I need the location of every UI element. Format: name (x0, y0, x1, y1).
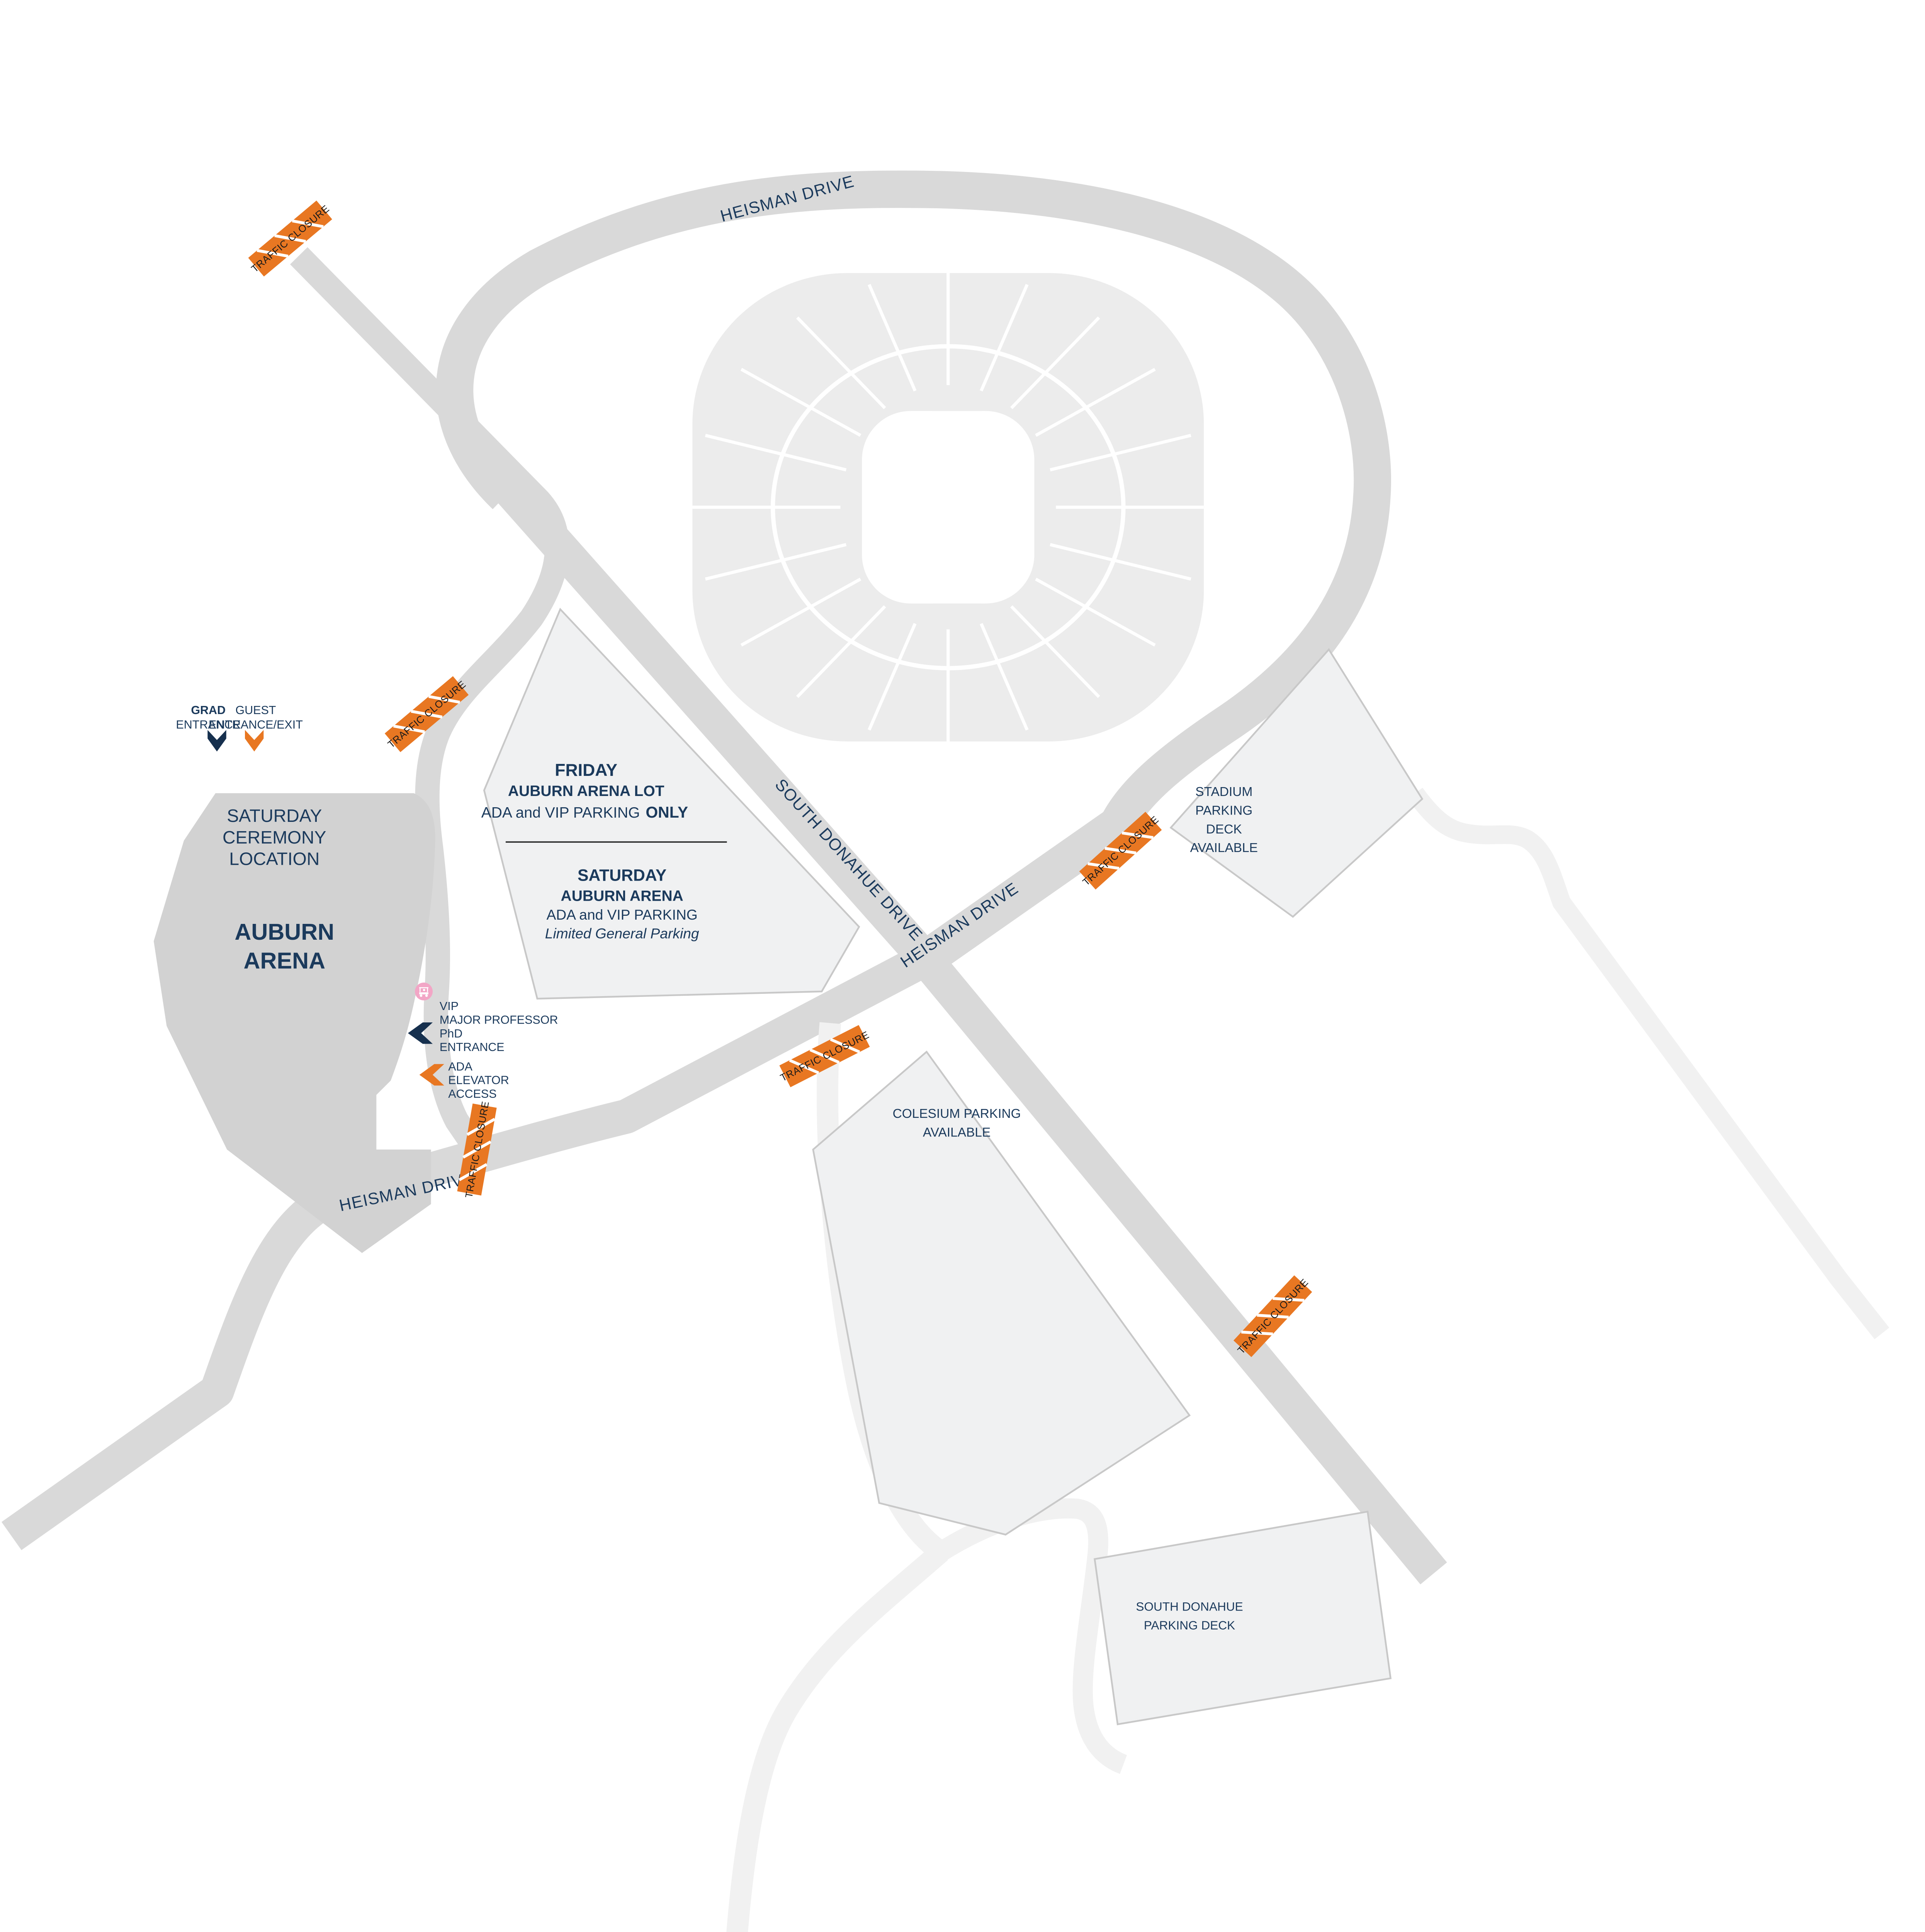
guest-entrance-label-line2: ENTRANCE/EXIT (209, 718, 303, 731)
friday-detail: ADA and VIP PARKINGONLY (481, 803, 688, 821)
vip-label-line2: MAJOR PROFESSOR (440, 1014, 558, 1027)
stadium-deck-exit-road (1415, 793, 1882, 1333)
deck-loop-road (941, 1509, 1123, 1765)
saturday-detail: ADA and VIP PARKING (547, 906, 698, 923)
grad-entrance-arrow-icon (207, 730, 226, 752)
stadium-parking-deck (1171, 650, 1422, 917)
stadium-deck-line1: STADIUM (1195, 785, 1252, 799)
golf-cart-badge (415, 983, 433, 1000)
saturday-subtitle: AUBURN ARENA (561, 888, 683, 905)
guest-entrance-arrow-icon (245, 730, 263, 752)
ceremony-line1: SATURDAY (227, 806, 322, 826)
south-access-road (724, 1552, 941, 1932)
vip-label-line3: PhD (440, 1027, 462, 1040)
golf-cart-badge-circle (415, 983, 433, 1000)
colesium-line2: AVAILABLE (923, 1125, 991, 1139)
campus-map: HEISMAN DRIVE SOUTH DONAHUE DRIVE HEISMA… (0, 0, 1925, 1932)
stadium-deck-line3: DECK (1206, 822, 1242, 837)
saturday-note: Limited General Parking (545, 925, 699, 941)
stadium-deck-line2: PARKING (1195, 804, 1252, 818)
sd-deck-line1: SOUTH DONAHUE (1136, 1600, 1243, 1614)
parking-areas (484, 609, 1422, 1725)
sd-deck-line2: PARKING DECK (1144, 1618, 1235, 1632)
stadium (692, 273, 1204, 742)
ada-label-line2: ELEVATOR (448, 1074, 509, 1087)
saturday-title: SATURDAY (578, 866, 666, 885)
vip-label-line4: ENTRANCE (440, 1041, 505, 1054)
vip-label-line1: VIP (440, 1000, 459, 1013)
ceremony-location-label: SATURDAY CEREMONY LOCATION (223, 806, 326, 869)
guest-entrance-label-line1: GUEST (235, 704, 276, 717)
stadium-deck-line4: AVAILABLE (1190, 841, 1258, 855)
colesium-line1: COLESIUM PARKING (893, 1107, 1021, 1121)
ada-elevator-access: ADA ELEVATOR ACCESS (420, 1060, 509, 1100)
friday-title: FRIDAY (555, 761, 617, 780)
ada-label-line3: ACCESS (448, 1087, 496, 1100)
arena-title-line2: ARENA (244, 947, 326, 973)
grad-entrance-label-line1: GRAD (191, 704, 226, 717)
south-donahue-parking-deck (1095, 1512, 1391, 1724)
svg-text:TRAFFIC CLOSURE: TRAFFIC CLOSURE (1235, 1276, 1310, 1356)
stadium-field (862, 411, 1034, 604)
arena-title-line1: AUBURN (234, 919, 334, 945)
ceremony-line2: CEREMONY (223, 827, 326, 847)
ada-label-line1: ADA (448, 1060, 472, 1073)
ceremony-line3: LOCATION (229, 849, 319, 869)
friday-subtitle: AUBURN ARENA LOT (508, 783, 664, 799)
